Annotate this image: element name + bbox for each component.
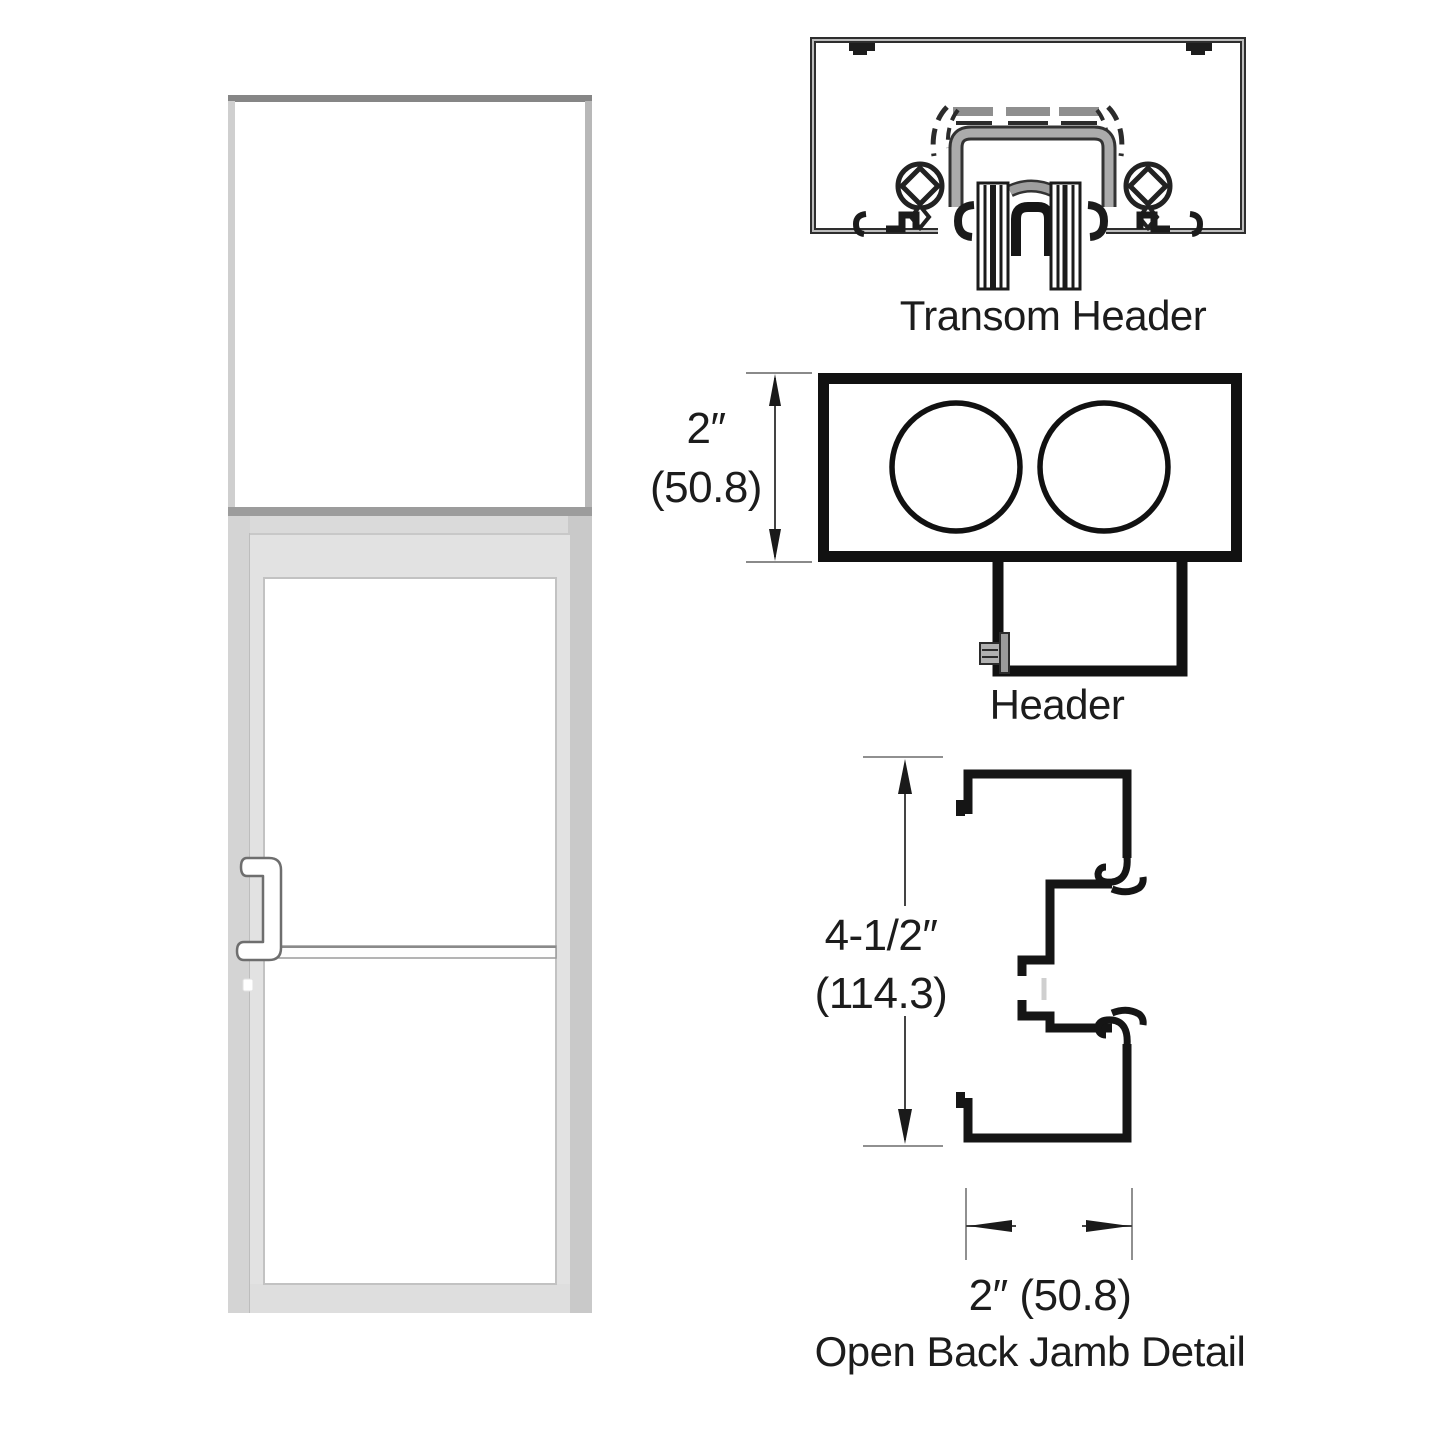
jamb-bottom-foot: [956, 1092, 965, 1108]
jamb-top-foot: [956, 800, 965, 816]
transom-glass: [235, 102, 585, 507]
transom-left-frame: [228, 101, 235, 507]
product-diagram-page: Transom Header 2″ (50.8) Header: [0, 0, 1445, 1445]
transom-header-detail: Transom Header: [813, 40, 1243, 339]
door-with-transom: [228, 95, 592, 1313]
door-right-jamb: [568, 516, 592, 1313]
header-screw-race-right: [1040, 403, 1168, 531]
door-left-jamb: [228, 516, 250, 1313]
header-stop-channel: [998, 560, 1182, 671]
jamb-height-mm: (114.3): [815, 969, 948, 1018]
jamb-width-dim: 2″ (50.8): [969, 1271, 1132, 1320]
diagram-canvas: Transom Header 2″ (50.8) Header: [0, 0, 1445, 1445]
door-glass: [264, 578, 556, 1284]
header-dim-mm: (50.8): [650, 463, 762, 512]
jamb-bottom-wall: [968, 1044, 1127, 1138]
door-frame-head: [228, 516, 592, 533]
corner-notch-left: [849, 43, 875, 55]
open-back-jamb-detail: [956, 774, 1143, 1138]
jamb-lower-hook: [1098, 1020, 1127, 1046]
center-arch: [1016, 207, 1049, 256]
jamb-upper-hook: [1098, 856, 1127, 882]
frame-head-bar: [228, 95, 592, 102]
open-back-jamb-label: Open Back Jamb Detail: [815, 1328, 1246, 1375]
header-screw-race-left: [892, 403, 1020, 531]
door-right-stile: [556, 578, 570, 1284]
transom-header-label: Transom Header: [900, 292, 1207, 339]
jamb-fastener-dot: [243, 979, 253, 991]
screw-spline-columns: [978, 183, 1080, 289]
transom-right-frame: [585, 101, 592, 507]
jamb-height-inches: 4-1/2″: [825, 911, 938, 960]
corner-notch-right: [1186, 43, 1212, 55]
door-top-rail: [250, 533, 570, 578]
header-tube: [824, 379, 1237, 557]
transom-bar: [228, 507, 592, 516]
jamb-width-dimension: [966, 1188, 1132, 1260]
door-bottom-rail: [250, 1284, 570, 1313]
header-label: Header: [990, 681, 1125, 728]
header-detail: 2″ (50.8) Header: [650, 373, 1236, 728]
jamb-upper-web: [1022, 884, 1112, 976]
header-dim-inches: 2″: [686, 404, 725, 453]
jamb-top-wall: [968, 774, 1127, 858]
